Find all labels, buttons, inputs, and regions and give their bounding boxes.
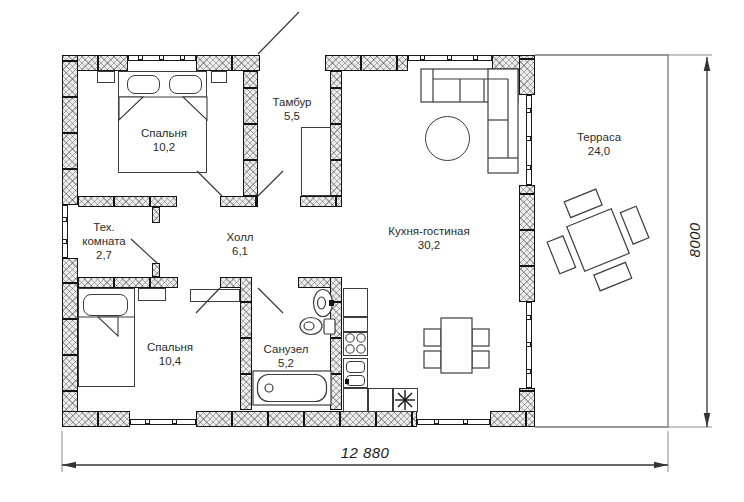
dimension-depth-label: 8000 [686,223,703,258]
chair [472,351,489,368]
nightstand [211,71,227,83]
room-area: 5,5 [272,109,311,123]
room-area: 10,4 [147,354,193,368]
wall-right-2 [519,185,535,302]
room-area: 10,2 [141,140,187,154]
room-name: Спальня [141,126,187,140]
kitchen-cabinet [343,317,368,332]
wall-bottom-1 [62,411,130,427]
room-area: 2,7 [71,248,137,262]
room-label-bathroom: Санузел 5,2 [264,342,309,370]
room-area: 24,0 [577,144,621,158]
kitchen-counter [343,388,368,412]
room-name: Спальня [147,340,193,354]
nightstand [138,288,166,301]
chair [620,206,648,244]
dimension-width [62,462,668,469]
wall-bedroom1-tambour [243,71,258,196]
dresser [190,289,240,302]
window-kitchen-north [408,55,492,61]
terrace-outline [535,55,668,427]
dimension-depth [704,57,711,427]
chair [424,351,441,368]
wall-tech-south [78,277,178,288]
kitchen-counter [368,388,393,412]
room-label-kitchen-living: Кухня-гостиная 30,2 [388,224,469,252]
floor-plan: Спальня 10,2 Тамбур 5,5 Тех. комната 2,7… [0,0,744,502]
terrace-table [567,209,629,271]
room-name: Терраса [577,130,621,144]
room-label-terrace: Терраса 24,0 [577,130,621,158]
wall-bottom-2 [196,411,417,427]
door-swing-bedroom1 [197,171,222,196]
pillow [127,75,160,94]
window-kitchen-east-lower [526,302,532,388]
boiler-cell [393,388,418,412]
wardrobe [301,127,331,196]
kitchen-sink-basin [346,361,365,373]
wall-tambour-east [330,71,342,196]
dining-set [424,318,489,373]
nightstand [97,71,115,83]
room-label-tech-room: Тех. комната 2,7 [71,220,137,262]
wall-tech-stub-1 [152,207,160,223]
wall-right-1 [519,55,535,95]
wall-bottom-3 [490,411,535,427]
round-table [425,116,470,161]
room-label-tambour: Тамбур 5,5 [272,95,311,123]
wall-bathroom-east [330,277,342,410]
sink-tap-icon [345,379,349,384]
window-kitchen-east-upper [526,95,532,185]
room-name: Санузел [264,342,309,356]
room-label-bedroom1: Спальня 10,2 [141,126,187,154]
dimension-width-label: 12 880 [341,444,389,461]
pillow [169,75,202,94]
wall-bathroom-west [240,277,252,410]
chair [564,189,602,217]
pillow [83,294,128,316]
wall-left-1 [62,55,78,205]
room-area: 30,2 [388,238,469,252]
room-area: 5,2 [264,356,309,370]
window-bedroom1 [128,55,196,61]
wall-left-2 [62,258,78,427]
window-kitchen-south [417,419,490,425]
room-name: Тех. комната [71,220,137,248]
room-label-bedroom2: Спальня 10,4 [147,340,193,368]
wall-tambour-foot [300,196,342,207]
chair [594,262,632,290]
kitchen-cabinet [343,288,368,317]
entrance-callout-line [258,12,299,54]
room-name: Холл [226,230,253,244]
wall-bedroom1-south-left [78,196,177,207]
chair [472,329,489,346]
room-label-hall: Холл 6,1 [226,230,253,258]
wall-top-3 [325,55,408,71]
window-tech-room [62,205,68,258]
wall-top-2 [196,55,260,71]
room-name: Кухня-гостиная [388,224,469,238]
chair [547,236,575,274]
wall-tech-stub-2 [152,263,160,277]
wall-bedroom1-south-right [220,196,258,207]
dining-table [441,318,472,373]
chair [424,329,441,346]
bathtub [253,371,331,405]
door-swing-tambour [258,171,283,196]
stove [343,332,368,356]
room-name: Тамбур [272,95,311,109]
door-swing-bathroom [258,288,283,313]
room-area: 6,1 [226,244,253,258]
terrace-table-set [536,178,661,303]
window-bedroom2 [130,419,196,425]
